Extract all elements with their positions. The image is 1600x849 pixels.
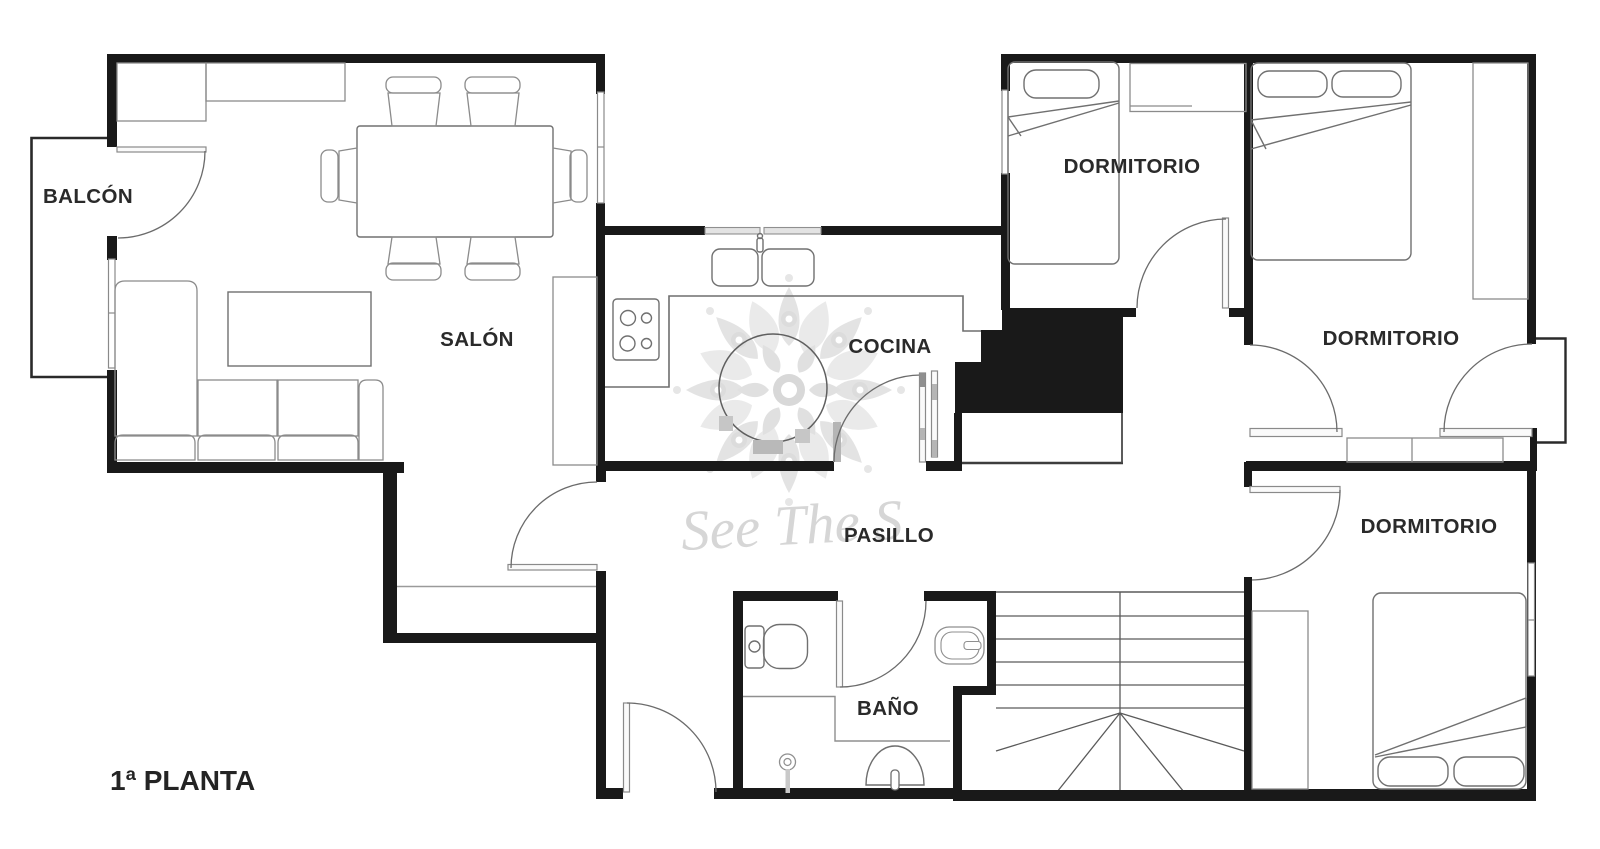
svg-text:SALÓN: SALÓN: [440, 327, 514, 351]
svg-text:BALCÓN: BALCÓN: [43, 184, 133, 208]
svg-text:1ª PLANTA: 1ª PLANTA: [110, 765, 255, 796]
svg-text:DORMITORIO: DORMITORIO: [1323, 327, 1460, 350]
svg-text:PASILLO: PASILLO: [844, 524, 934, 547]
svg-text:COCINA: COCINA: [848, 335, 931, 358]
svg-text:DORMITORIO: DORMITORIO: [1064, 155, 1201, 178]
svg-text:BAÑO: BAÑO: [857, 697, 919, 720]
svg-text:DORMITORIO: DORMITORIO: [1361, 515, 1498, 538]
